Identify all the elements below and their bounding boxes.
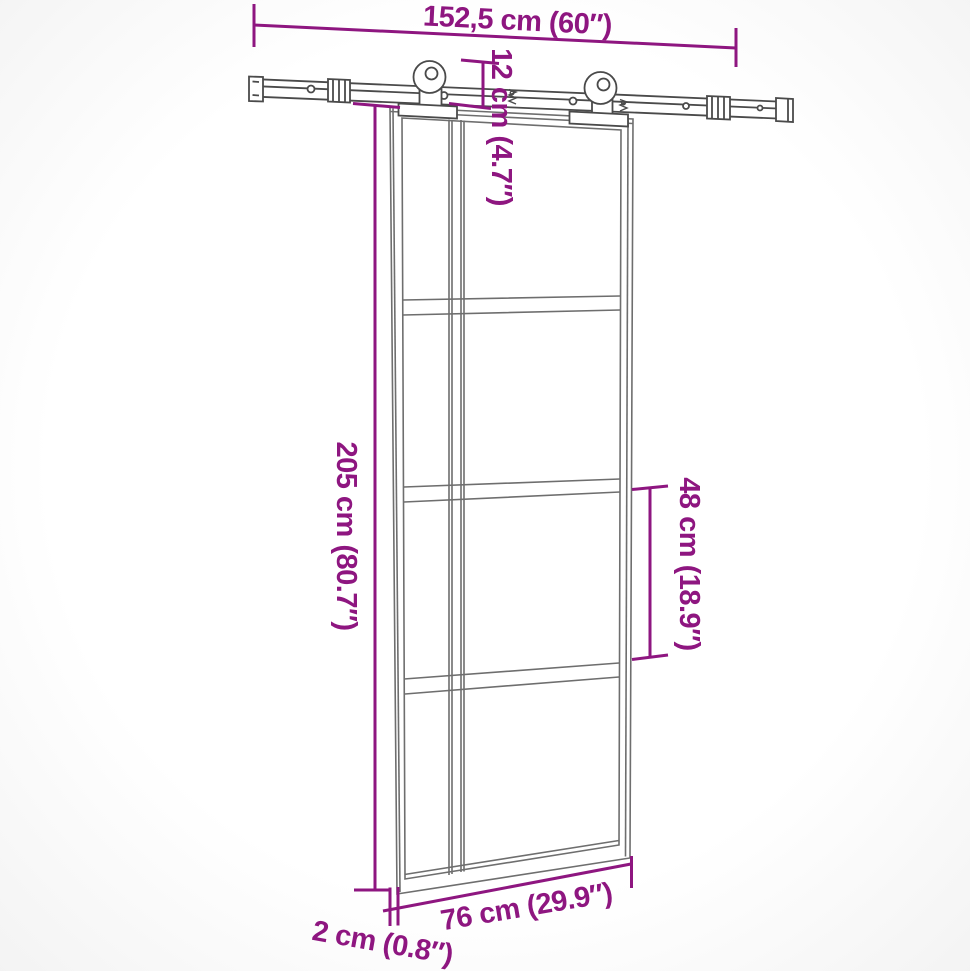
diagram-canvas: 152,5 cm (60″) 12 cm (4.7″) 205 cm (80.7… — [0, 0, 970, 971]
rail-hole-5 — [758, 106, 763, 111]
rail-left-endcap — [249, 77, 263, 102]
door-bottom-rail-line — [405, 841, 620, 875]
left-hanger-plate — [399, 104, 458, 119]
product-dimension-diagram: 152,5 cm (60″) 12 cm (4.7″) 205 cm (80.7… — [0, 0, 970, 971]
sliding-door — [390, 107, 633, 894]
label-door-height: 205 cm (80.7″) — [330, 441, 362, 630]
crossbar-1 — [403, 296, 620, 315]
rail-hole-3 — [570, 98, 577, 105]
rail-hole-4 — [683, 103, 689, 109]
right-hanger-plate — [570, 112, 629, 127]
label-panel-height: 48 cm (18.9″) — [673, 477, 705, 650]
dimension-labels: 152,5 cm (60″) 12 cm (4.7″) 205 cm (80.7… — [310, 0, 705, 971]
rail-right-endcap — [776, 98, 793, 122]
rail-hole-1 — [308, 86, 315, 93]
crossbar-2 — [404, 479, 620, 502]
dim-panel-height — [632, 486, 668, 660]
track-rail — [249, 77, 793, 123]
label-door-width: 76 cm (29.9″) — [438, 877, 614, 937]
dim-door-thickness — [390, 887, 398, 926]
label-door-thickness: 2 cm (0.8″) — [310, 915, 456, 971]
left-roller-axle — [426, 68, 438, 80]
right-roller-axle — [598, 79, 610, 91]
label-hanger-drop: 12 cm (4.7″) — [485, 48, 517, 206]
door-right-edge — [626, 121, 629, 857]
door-inner-frame — [402, 118, 621, 879]
vertical-bar — [449, 120, 464, 876]
crossbar-3 — [404, 663, 619, 694]
